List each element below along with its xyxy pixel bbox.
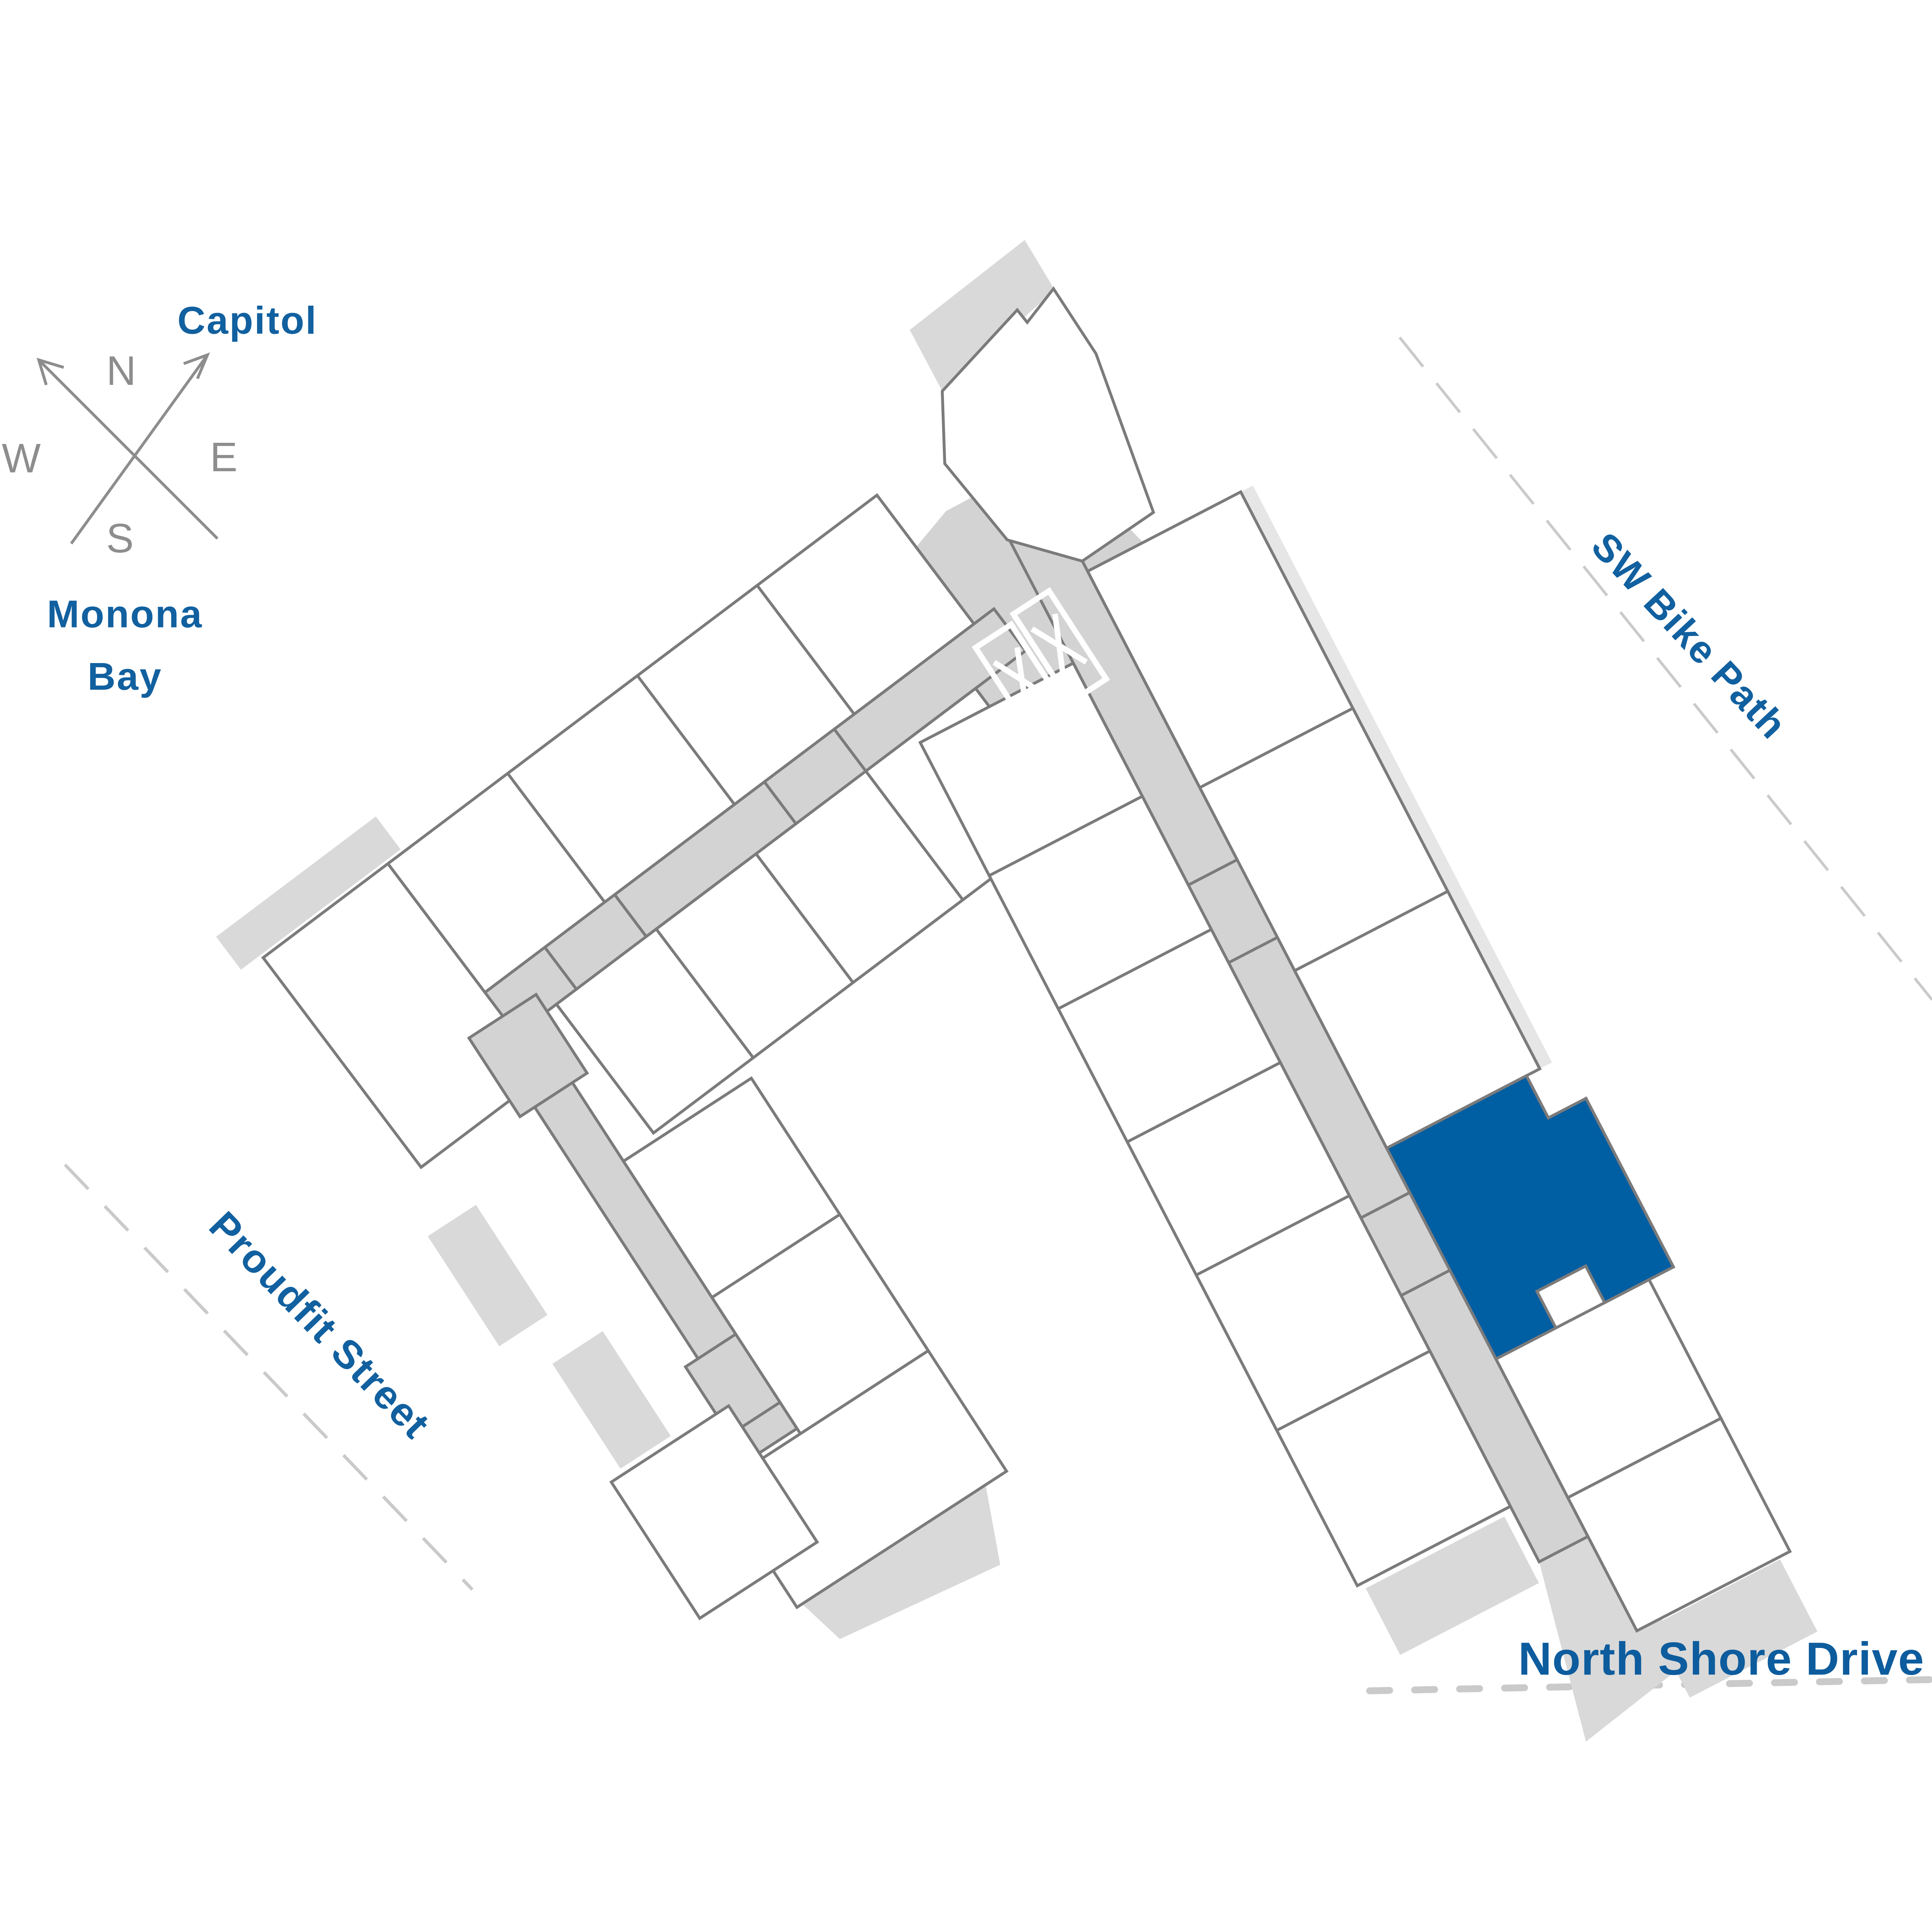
compass-east: E — [210, 434, 237, 480]
sw-bike-path-label: SW Bike Path — [1583, 524, 1795, 747]
compass-icon: N W E S — [2, 347, 238, 561]
capitol-label: Capitol — [177, 299, 317, 342]
compass-north: N — [106, 347, 136, 394]
north-shore-drive-label: North Shore Drive — [1518, 1633, 1924, 1685]
balcony — [553, 1331, 671, 1469]
monona-bay-label-line2: Bay — [88, 655, 163, 698]
compass-south: S — [106, 515, 134, 561]
proudfit-street-line — [65, 1165, 472, 1590]
site-plan-svg: N W E S Capitol Monona Bay SW Bike Path … — [0, 0, 1932, 1932]
proudfit-street-label: Proudfit Street — [201, 1203, 439, 1447]
balcony — [428, 1205, 548, 1346]
compass-west: W — [2, 435, 41, 481]
monona-bay-label-line1: Monona — [47, 593, 203, 636]
sw-bike-path-line — [1400, 337, 1932, 1000]
